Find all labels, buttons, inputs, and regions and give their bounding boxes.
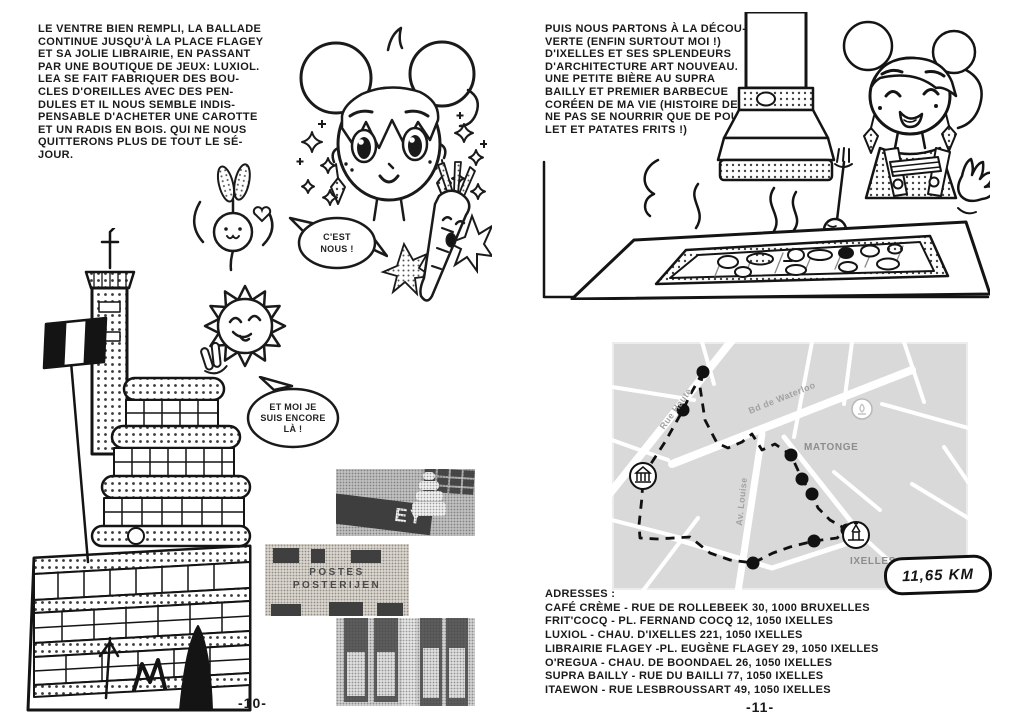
- address-line: LUXIOL - CHAU. D'IXELLES 221, 1050 IXELL…: [545, 629, 879, 643]
- flag-pole: [70, 350, 88, 562]
- carrot-leaf: [438, 163, 453, 194]
- grill-food: [861, 246, 879, 257]
- photo-door: [374, 618, 398, 702]
- pendulum-earring-right: [942, 126, 956, 151]
- carrot-leaf: [459, 167, 475, 196]
- grill-food: [735, 267, 751, 277]
- grill-food: [839, 248, 853, 258]
- tiered-tower-sculpture: [412, 472, 446, 516]
- round-window: [128, 528, 144, 544]
- earring-left-wire: [336, 164, 338, 178]
- left-page-paragraph: LE VENTRE BIEN REMPLI, LA BALLADE CONTIN…: [38, 23, 318, 162]
- waving-hand: [958, 159, 990, 201]
- map-marker-landmark: [630, 463, 656, 489]
- strap-buckle: [894, 180, 903, 189]
- photo-door: [344, 618, 368, 702]
- strap-buckle: [930, 178, 939, 187]
- pendulum-earring-left: [864, 128, 878, 153]
- map-marker-faint: [852, 399, 872, 419]
- smoke-wisp: [694, 184, 699, 228]
- address-line: O'REGUA - CHAU. DE BOONDAEL 26, 1050 IXE…: [545, 657, 879, 671]
- address-line: ITAEWON - RUE LESBROUSSART 49, 1050 IXEL…: [545, 684, 879, 698]
- photo-window: [271, 604, 301, 616]
- bubble-text-line: SUIS ENCORE: [260, 413, 325, 423]
- post-office-sign-text: POSTES POSTERIJEN: [265, 566, 409, 592]
- flagey-building-illustration: [18, 228, 253, 712]
- bubble-text-line: C'EST: [323, 232, 351, 242]
- ahoge-strand: [388, 28, 402, 50]
- bbq-scene-illustration: [538, 12, 990, 300]
- addresses-block: ADRESSES : CAFÉ CRÈME - RUE DE ROLLEBEEK…: [545, 588, 879, 698]
- map-blocks: [614, 344, 966, 588]
- photo-door: [420, 618, 442, 706]
- grill-food: [888, 245, 902, 254]
- hood-pipe: [746, 12, 806, 88]
- comic-page-spread: LE VENTRE BIEN REMPLI, LA BALLADE CONTIN…: [0, 0, 1024, 726]
- area-label-matonge: MATONGE: [804, 442, 858, 453]
- address-line: LIBRAIRIE FLAGEY -PL. EUGÈNE FLAGEY 29, …: [545, 643, 879, 657]
- photo-window: [273, 548, 299, 563]
- left-page-number: -10-: [238, 695, 267, 711]
- grill-food: [747, 254, 773, 265]
- grill-food: [839, 262, 857, 272]
- bubble-text-line: NOUS !: [320, 244, 353, 254]
- tower-antenna: [102, 228, 118, 268]
- carrot-leaf: [454, 162, 461, 193]
- photo-flagey-sign: EY: [336, 469, 475, 536]
- grill-food: [808, 250, 832, 260]
- photo-window: [329, 602, 363, 616]
- radish-leaf: [231, 163, 252, 201]
- photo-window: [351, 550, 381, 563]
- address-line: FRIT'COCQ - PL. FERNAND COCQ 12, 1050 IX…: [545, 615, 879, 629]
- photo-pillar: [402, 618, 416, 706]
- heart-icon: [254, 207, 270, 221]
- smoke-wisp: [645, 160, 658, 216]
- photo-building-facade: [336, 618, 475, 706]
- carrot-character-illustration: [376, 158, 492, 306]
- carrot-mouth: [447, 234, 456, 247]
- grill-food: [786, 265, 806, 275]
- speech-bubble-encore: ET MOI JE SUIS ENCORE LÀ !: [240, 376, 346, 450]
- map-marker-church: [843, 522, 869, 548]
- smoke-wisp: [771, 188, 777, 234]
- distance-value: 11,65 KM: [902, 565, 974, 584]
- bbq-girl-bun-left: [844, 22, 892, 70]
- grill-food: [877, 259, 899, 270]
- smoke-wisp: [793, 192, 797, 230]
- route-map: Rue Haute Bd de Waterloo Av. Louise MATO…: [612, 342, 968, 590]
- bubble-text-line: ET MOI JE: [269, 402, 316, 412]
- address-line: CAFÉ CRÈME - RUE DE ROLLEBEEK 30, 1000 B…: [545, 602, 879, 616]
- distance-badge: 11,65 KM: [883, 554, 992, 596]
- photo-window: [311, 549, 325, 563]
- photo-window: [377, 603, 403, 616]
- addresses-title: ADRESSES :: [545, 588, 879, 602]
- address-line: SUPRA BAILLY - RUE DU BAILLI 77, 1050 IX…: [545, 670, 879, 684]
- bubble-text-line: LÀ !: [284, 424, 303, 434]
- right-page-number: -11-: [746, 699, 774, 715]
- fork: [837, 162, 844, 220]
- photo-door: [446, 618, 468, 706]
- speech-bubble-cest-nous: C'EST NOUS !: [288, 210, 388, 274]
- photo-post-office-sign: POSTES POSTERIJEN: [265, 544, 409, 616]
- grill-food: [718, 256, 738, 268]
